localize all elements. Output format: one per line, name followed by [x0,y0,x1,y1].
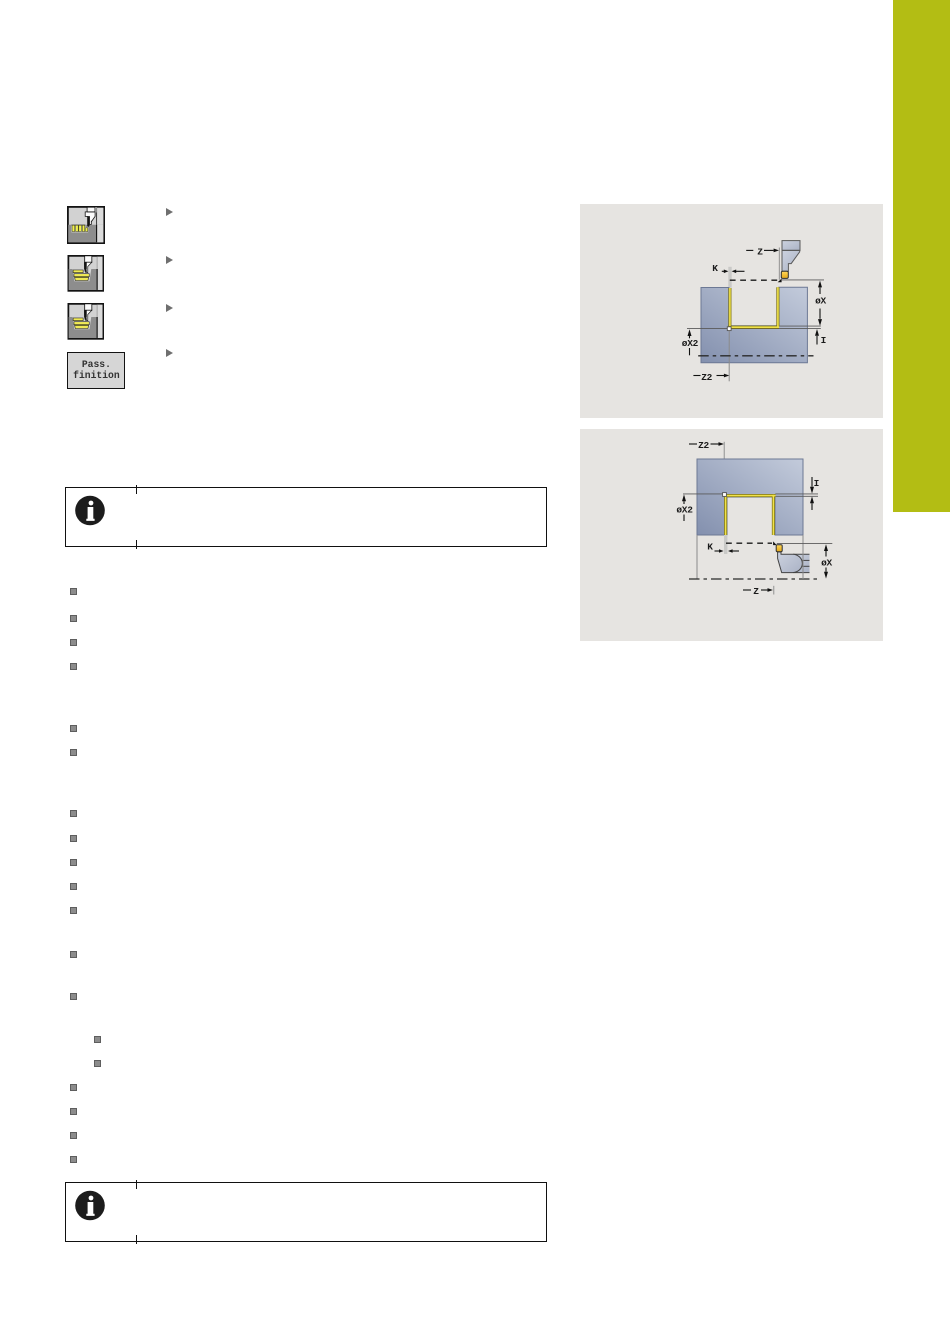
svg-text:Z: Z [753,586,759,597]
svg-text:Z2: Z2 [701,372,712,383]
svg-text:Z2: Z2 [698,440,709,451]
svg-text:øX2: øX2 [676,504,693,515]
svg-text:I: I [814,478,819,489]
svg-text:øX2: øX2 [682,338,699,349]
svg-text:I: I [821,335,826,346]
svg-text:øX: øX [821,557,832,568]
svg-text:K: K [712,263,718,274]
svg-text:øX: øX [815,296,826,307]
svg-text:Z: Z [757,246,763,257]
svg-text:K: K [707,541,713,552]
